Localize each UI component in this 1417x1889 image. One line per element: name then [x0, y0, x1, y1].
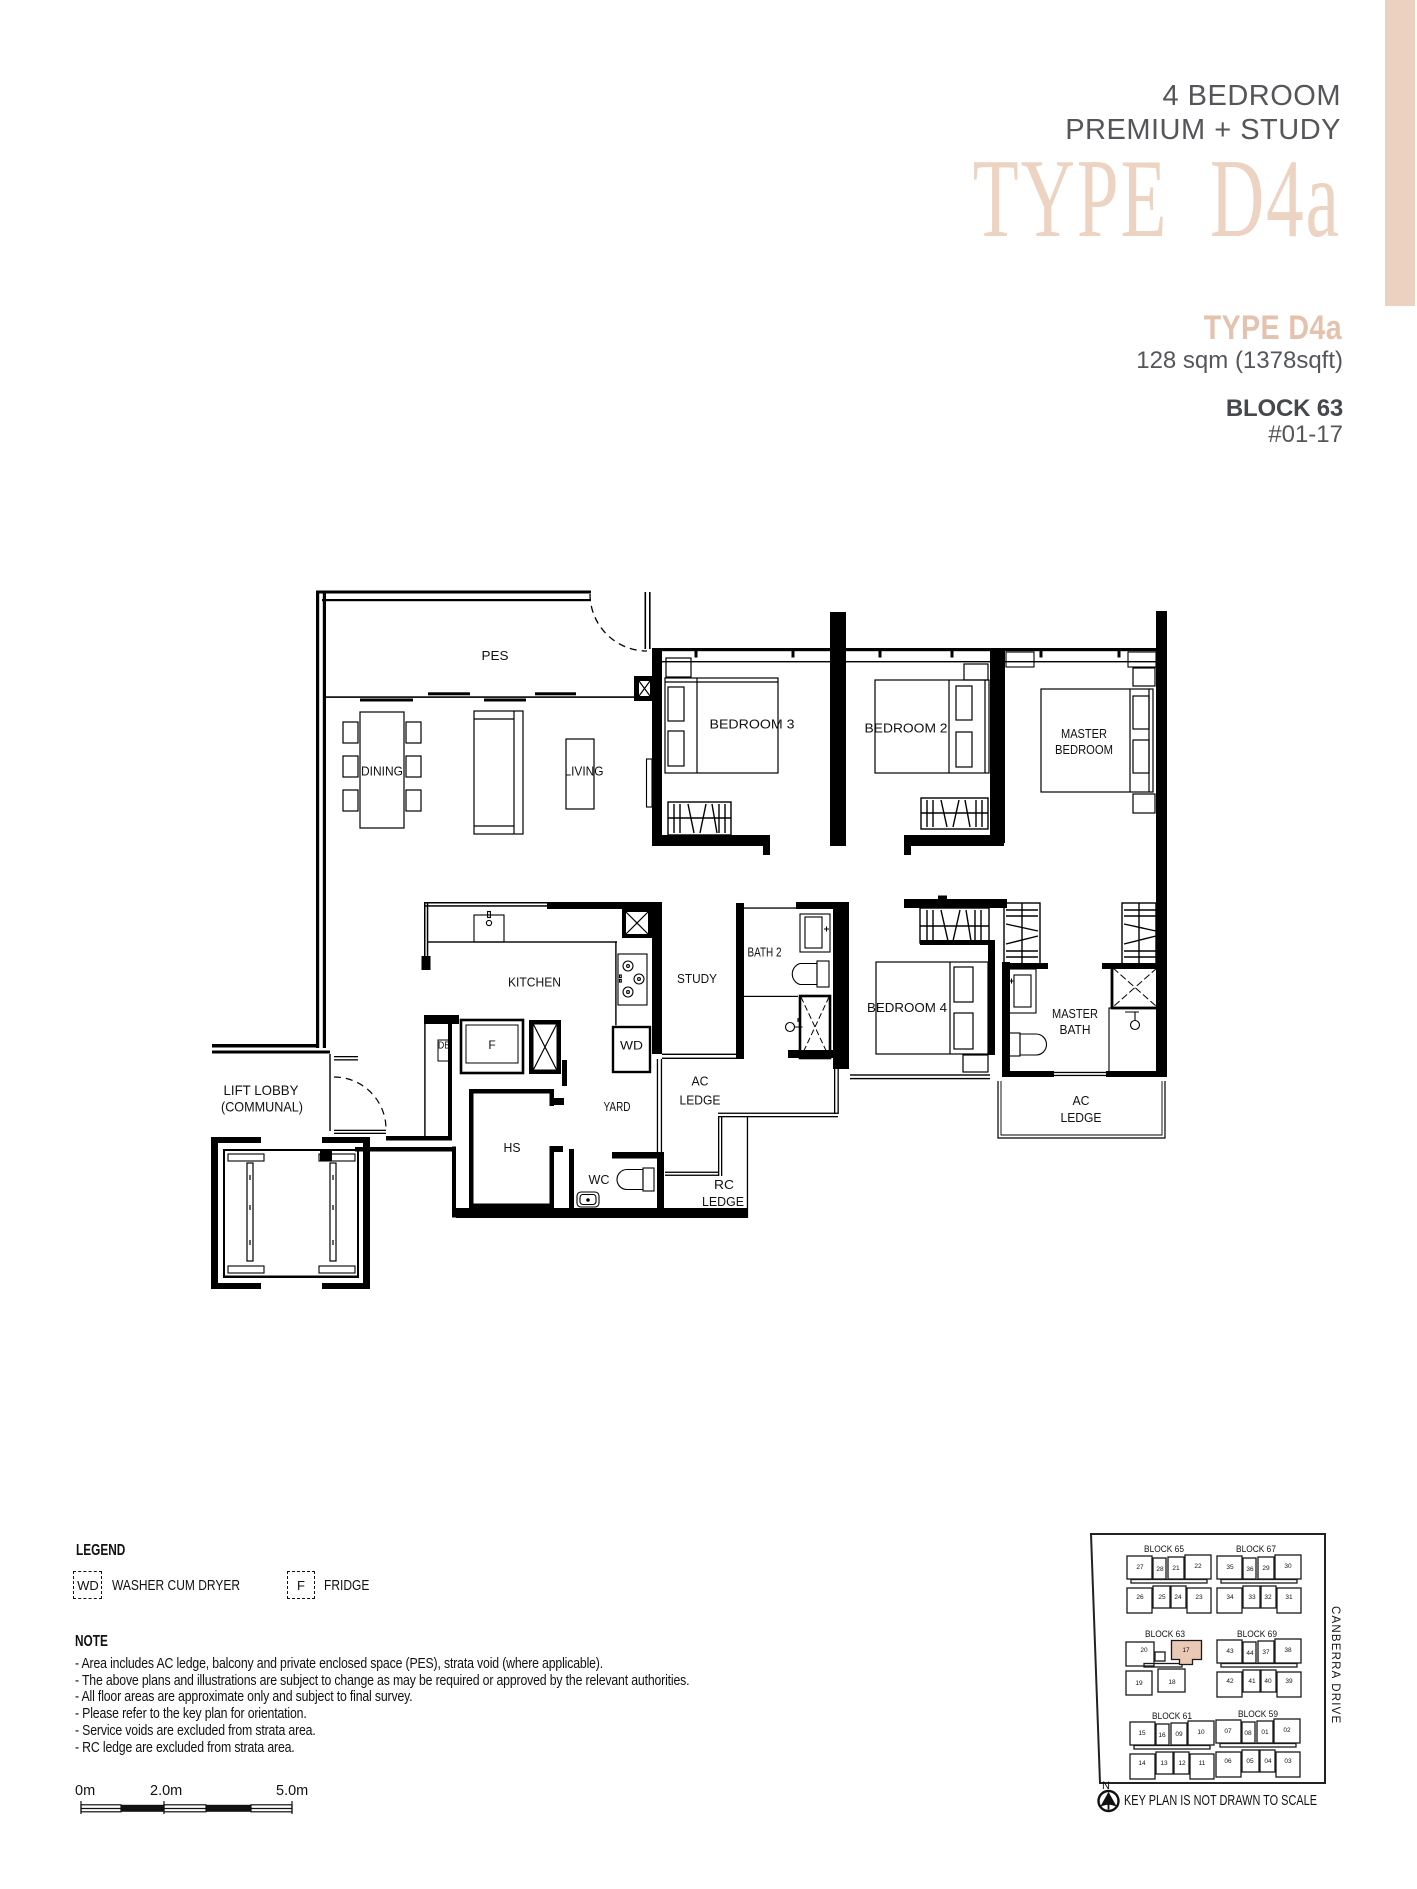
svg-text:39: 39: [1285, 1678, 1293, 1685]
svg-text:38: 38: [1284, 1647, 1292, 1654]
svg-text:29: 29: [1262, 1565, 1270, 1572]
svg-text:08: 08: [1244, 1730, 1252, 1737]
svg-text:41: 41: [1248, 1678, 1256, 1685]
svg-text:14: 14: [1138, 1760, 1146, 1767]
svg-text:23: 23: [1195, 1594, 1203, 1601]
svg-text:37: 37: [1262, 1649, 1270, 1656]
svg-text:44: 44: [1246, 1650, 1254, 1657]
svg-text:16: 16: [1158, 1732, 1166, 1739]
svg-text:10: 10: [1197, 1729, 1205, 1736]
svg-text:06: 06: [1224, 1758, 1232, 1765]
svg-text:BLOCK 59: BLOCK 59: [1238, 1709, 1278, 1720]
svg-text:09: 09: [1175, 1731, 1183, 1738]
svg-text:21: 21: [1172, 1565, 1180, 1572]
svg-text:13: 13: [1160, 1760, 1168, 1767]
svg-text:CANBERRA DRIVE: CANBERRA DRIVE: [1329, 1606, 1341, 1724]
svg-text:34: 34: [1226, 1594, 1234, 1601]
svg-text:BLOCK 61: BLOCK 61: [1152, 1711, 1192, 1722]
svg-text:0m: 0m: [75, 1783, 95, 1799]
svg-text:32: 32: [1264, 1594, 1272, 1601]
svg-text:04: 04: [1264, 1758, 1272, 1765]
svg-text:22: 22: [1194, 1563, 1202, 1570]
svg-text:30: 30: [1284, 1563, 1292, 1570]
svg-text:BLOCK 67: BLOCK 67: [1236, 1544, 1276, 1555]
svg-text:36: 36: [1246, 1566, 1254, 1573]
svg-text:07: 07: [1224, 1728, 1232, 1735]
svg-text:5.0m: 5.0m: [276, 1783, 308, 1799]
svg-text:01: 01: [1261, 1729, 1269, 1736]
svg-text:40: 40: [1264, 1678, 1272, 1685]
svg-text:42: 42: [1226, 1678, 1234, 1685]
svg-text:35: 35: [1226, 1564, 1234, 1571]
svg-text:2.0m: 2.0m: [150, 1783, 182, 1799]
svg-text:26: 26: [1136, 1594, 1144, 1601]
svg-text:17: 17: [1182, 1647, 1190, 1654]
svg-text:27: 27: [1136, 1564, 1144, 1571]
svg-text:BLOCK 63: BLOCK 63: [1145, 1629, 1185, 1640]
svg-text:28: 28: [1156, 1566, 1164, 1573]
svg-text:33: 33: [1248, 1594, 1256, 1601]
svg-text:03: 03: [1284, 1758, 1292, 1765]
svg-text:BLOCK 65: BLOCK 65: [1144, 1544, 1184, 1555]
svg-text:25: 25: [1158, 1594, 1166, 1601]
svg-text:15: 15: [1138, 1730, 1146, 1737]
svg-text:BLOCK 69: BLOCK 69: [1237, 1629, 1277, 1640]
svg-text:19: 19: [1135, 1680, 1143, 1687]
svg-text:43: 43: [1226, 1648, 1234, 1655]
svg-text:11: 11: [1199, 1760, 1206, 1767]
svg-text:02: 02: [1283, 1727, 1291, 1734]
svg-text:05: 05: [1246, 1758, 1254, 1765]
svg-text:12: 12: [1178, 1760, 1186, 1767]
svg-text:18: 18: [1168, 1679, 1176, 1686]
svg-text:20: 20: [1140, 1647, 1148, 1654]
svg-text:KEY PLAN IS NOT DRAWN TO SCALE: KEY PLAN IS NOT DRAWN TO SCALE: [1124, 1793, 1317, 1809]
svg-text:31: 31: [1285, 1594, 1293, 1601]
svg-text:24: 24: [1174, 1594, 1182, 1601]
